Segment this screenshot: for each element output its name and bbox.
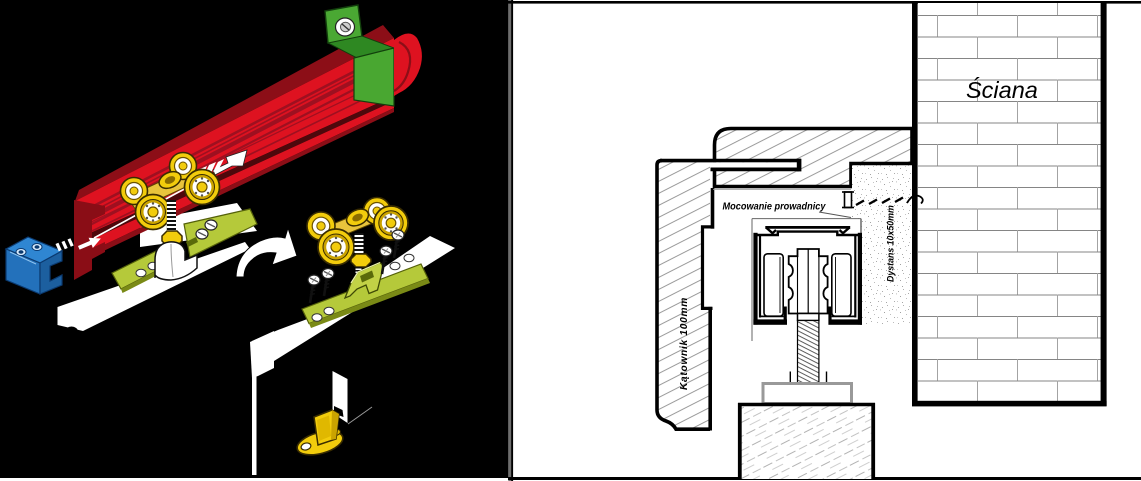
svg-text:Ściana: Ściana	[966, 76, 1038, 103]
svg-text:Mocowanie prowadnicy: Mocowanie prowadnicy	[723, 202, 826, 213]
svg-text:Kątownik 100mm: Kątownik 100mm	[679, 297, 690, 390]
svg-text:Dystans 10x50mm: Dystans 10x50mm	[886, 205, 896, 282]
